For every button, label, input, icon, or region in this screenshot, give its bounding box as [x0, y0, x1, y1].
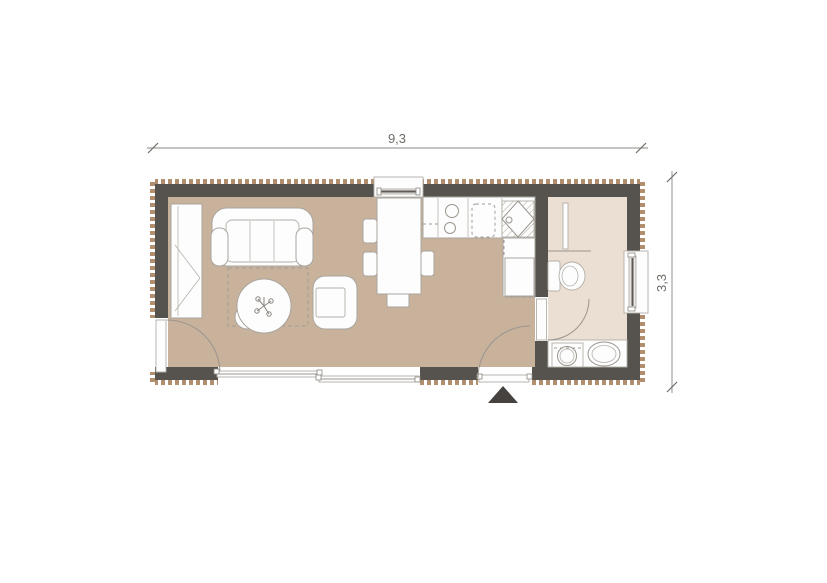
- floor-plan-canvas: 9,3 3,3: [0, 0, 827, 583]
- dimension-width: 9,3: [147, 131, 648, 153]
- dining-chair: [421, 251, 434, 276]
- washing-machine: [552, 343, 583, 367]
- wardrobe: [171, 204, 202, 318]
- dimension-width-label: 9,3: [388, 131, 406, 146]
- dining-table: [377, 198, 421, 294]
- dining-chair: [363, 252, 377, 276]
- sofa: [211, 208, 313, 266]
- entrance-arrow: [488, 386, 518, 403]
- right-window: [624, 251, 648, 313]
- partition-wall: [535, 197, 548, 297]
- top-window: [374, 177, 423, 197]
- armchair: [313, 276, 357, 329]
- kitchen-sink: [502, 201, 534, 237]
- dimension-height: 3,3: [654, 171, 677, 393]
- floor-plan-drawing: 9,3 3,3: [0, 0, 827, 583]
- dining-chair: [363, 219, 377, 243]
- toilet: [548, 261, 585, 291]
- dimension-height-label: 3,3: [654, 274, 669, 292]
- sliding-glass-window: [214, 369, 420, 382]
